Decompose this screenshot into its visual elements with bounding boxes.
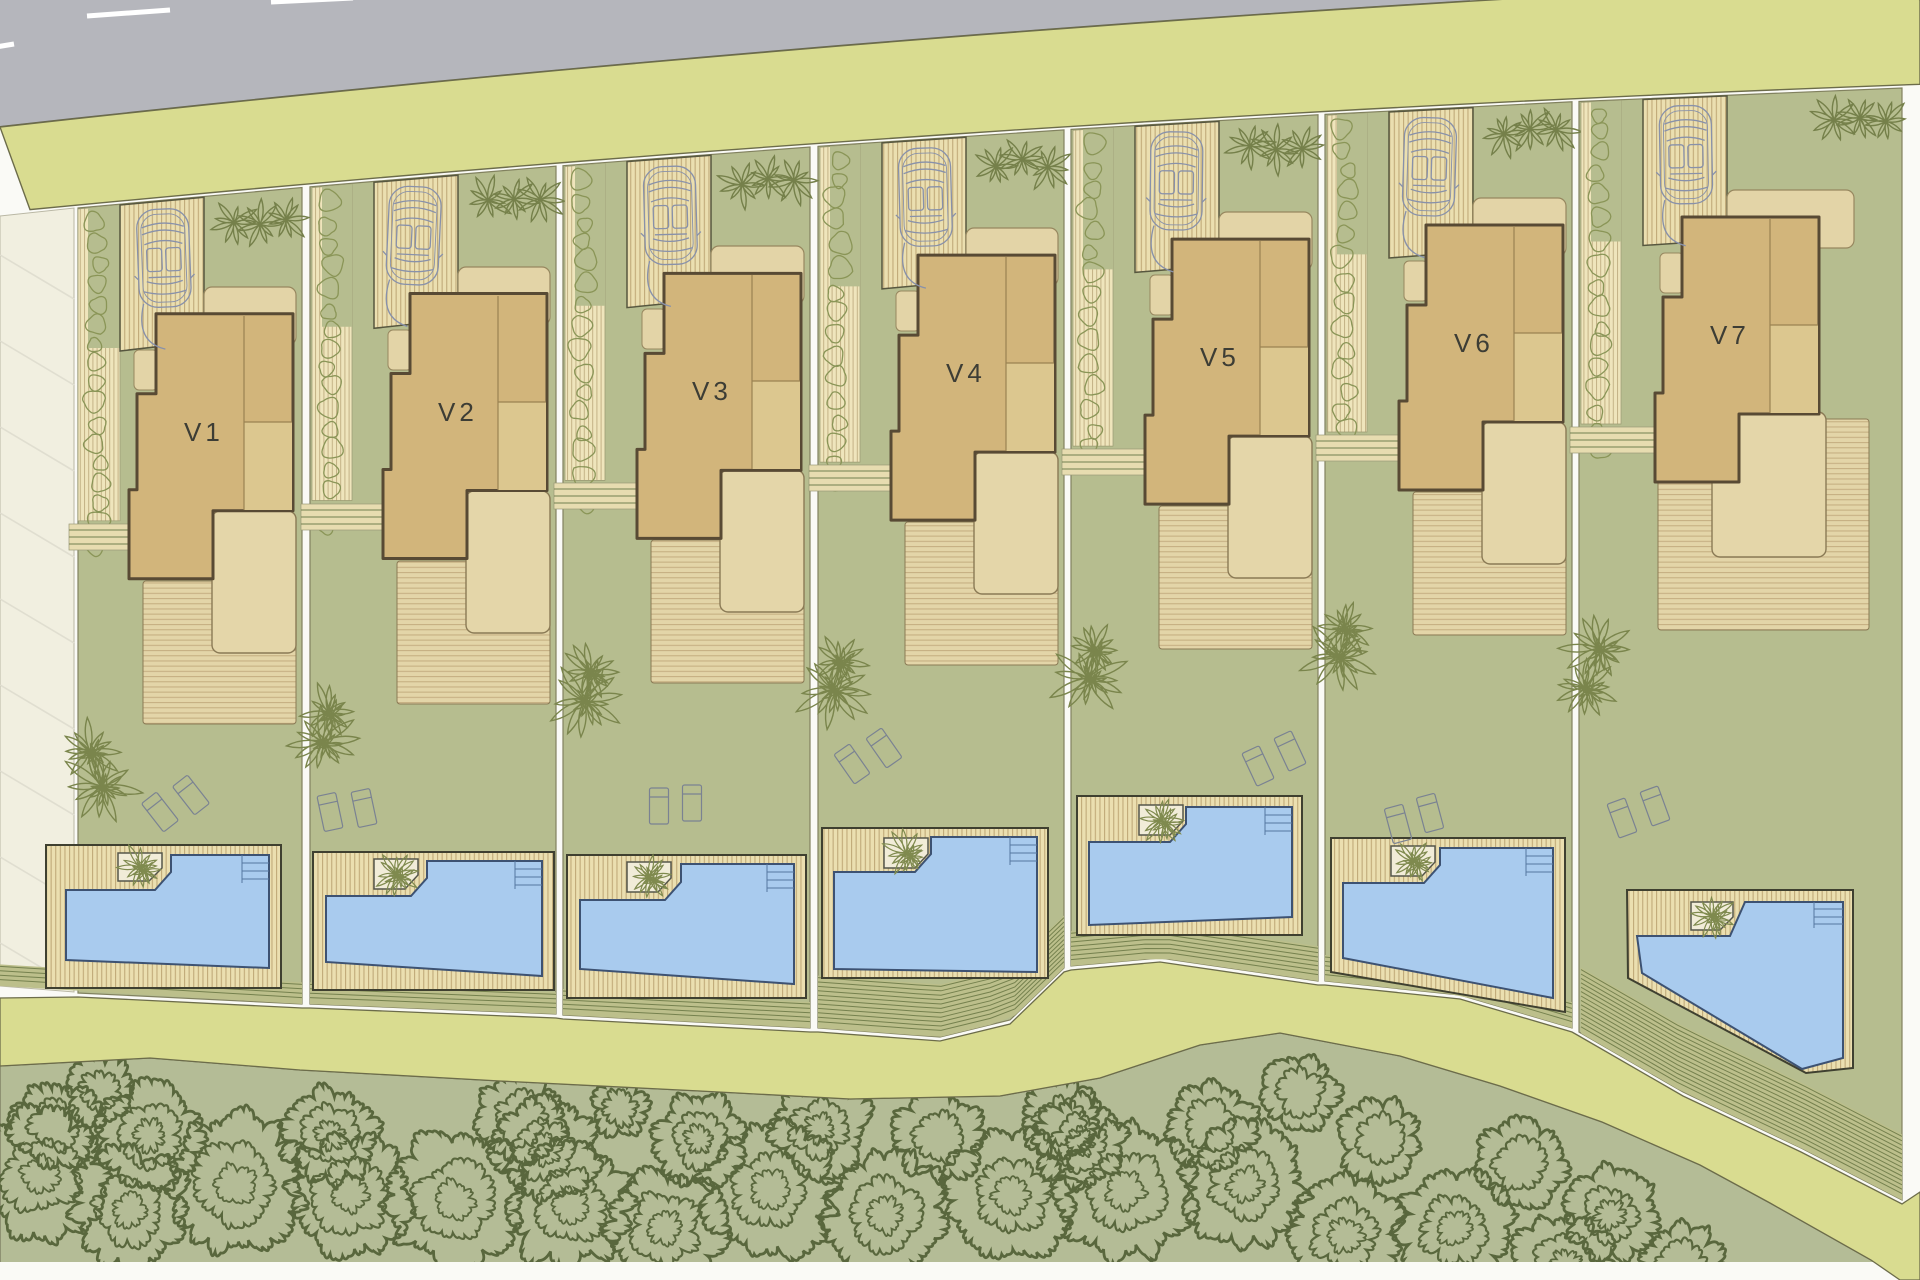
svg-text:V3: V3 (692, 376, 732, 406)
svg-text:V4: V4 (946, 358, 986, 388)
svg-text:V1: V1 (184, 417, 224, 447)
svg-text:V2: V2 (438, 397, 478, 427)
svg-text:V5: V5 (1200, 342, 1240, 372)
svg-text:V6: V6 (1454, 328, 1494, 358)
svg-text:V7: V7 (1710, 320, 1750, 350)
